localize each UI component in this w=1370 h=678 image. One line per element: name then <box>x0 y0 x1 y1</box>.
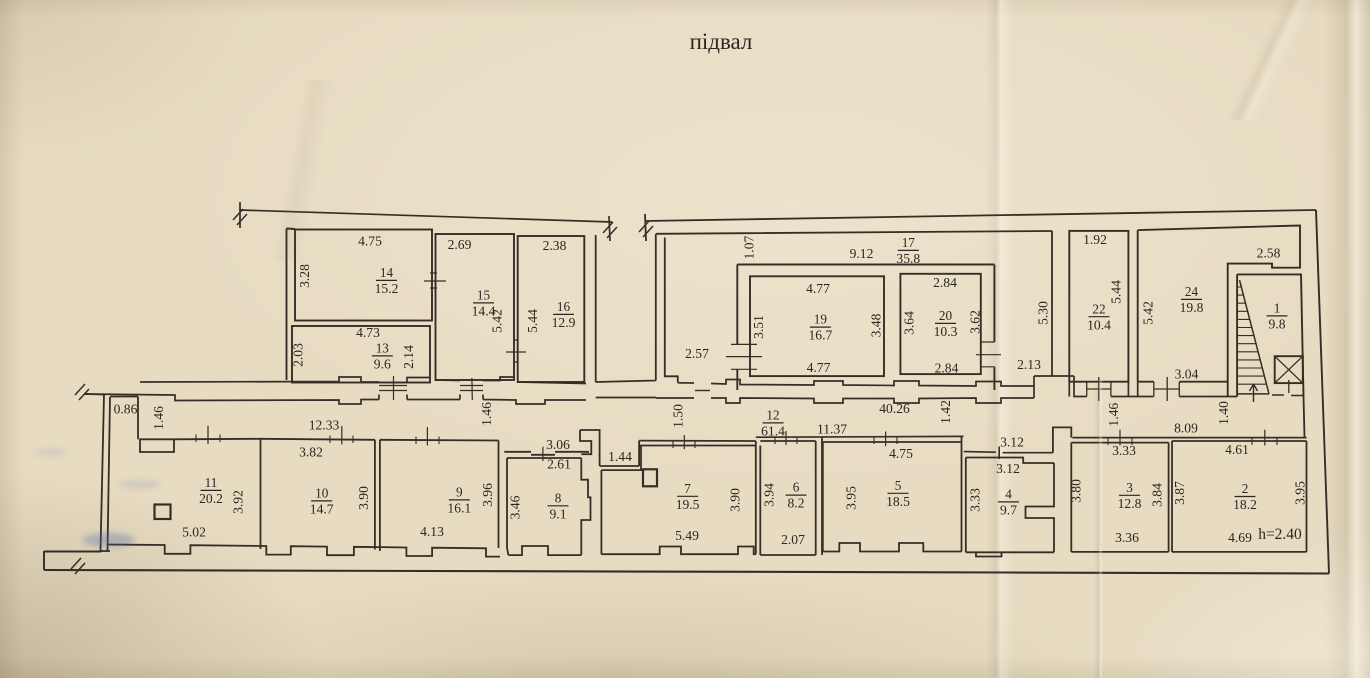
svg-text:3.51: 3.51 <box>751 315 766 339</box>
svg-text:3.33: 3.33 <box>1112 443 1136 458</box>
svg-text:3.94: 3.94 <box>762 483 777 507</box>
svg-text:20: 20 <box>939 308 953 323</box>
svg-text:5.30: 5.30 <box>1036 301 1051 325</box>
svg-text:4.13: 4.13 <box>420 524 444 539</box>
svg-text:8.09: 8.09 <box>1174 421 1198 436</box>
svg-text:3.64: 3.64 <box>902 311 917 335</box>
svg-text:2.14: 2.14 <box>401 345 416 369</box>
svg-text:8: 8 <box>555 490 562 505</box>
svg-text:4.73: 4.73 <box>356 325 380 340</box>
svg-text:5.42: 5.42 <box>490 309 505 333</box>
svg-text:2.57: 2.57 <box>685 346 709 361</box>
svg-text:5.44: 5.44 <box>525 309 540 333</box>
svg-text:3.12: 3.12 <box>1000 435 1024 450</box>
svg-text:9.12: 9.12 <box>850 246 874 261</box>
svg-text:12.8: 12.8 <box>1118 496 1142 511</box>
svg-text:4.75: 4.75 <box>889 446 913 461</box>
svg-text:6: 6 <box>793 480 800 495</box>
svg-text:11: 11 <box>205 475 218 490</box>
svg-text:8.2: 8.2 <box>788 496 805 511</box>
svg-text:16.1: 16.1 <box>447 501 471 516</box>
svg-text:19.8: 19.8 <box>1180 300 1204 315</box>
svg-text:20.2: 20.2 <box>199 491 223 506</box>
svg-text:3.06: 3.06 <box>546 437 570 452</box>
svg-text:2.03: 2.03 <box>291 343 306 367</box>
svg-text:12: 12 <box>766 408 779 423</box>
svg-text:9: 9 <box>456 485 463 500</box>
svg-text:1.46: 1.46 <box>151 406 166 430</box>
svg-text:15.2: 15.2 <box>375 281 399 296</box>
svg-text:9.1: 9.1 <box>550 506 567 521</box>
svg-text:16: 16 <box>557 299 571 314</box>
svg-text:3.80: 3.80 <box>1069 479 1084 503</box>
svg-text:3.33: 3.33 <box>968 488 983 512</box>
svg-text:61.4: 61.4 <box>761 424 785 439</box>
svg-text:2: 2 <box>1242 481 1249 496</box>
svg-text:10.4: 10.4 <box>1087 317 1111 332</box>
svg-text:12.9: 12.9 <box>552 315 576 330</box>
svg-text:3.48: 3.48 <box>869 313 884 337</box>
svg-text:3.62: 3.62 <box>968 310 983 334</box>
svg-text:2.58: 2.58 <box>1257 246 1281 261</box>
svg-text:2.07: 2.07 <box>781 532 805 547</box>
svg-text:12.33: 12.33 <box>309 418 340 433</box>
svg-text:9.8: 9.8 <box>1269 317 1286 332</box>
svg-text:5.02: 5.02 <box>182 525 206 540</box>
svg-text:1.46: 1.46 <box>479 402 494 426</box>
svg-text:3.46: 3.46 <box>508 495 523 519</box>
svg-text:11.37: 11.37 <box>817 422 847 437</box>
svg-text:1: 1 <box>1274 301 1281 316</box>
svg-text:5.42: 5.42 <box>1141 301 1156 325</box>
svg-text:18.5: 18.5 <box>886 494 910 509</box>
svg-text:7: 7 <box>684 481 691 496</box>
svg-text:1.92: 1.92 <box>1083 232 1107 247</box>
svg-text:3.90: 3.90 <box>728 488 743 512</box>
svg-text:2.61: 2.61 <box>547 457 571 472</box>
svg-text:4: 4 <box>1005 487 1012 502</box>
svg-text:3.95: 3.95 <box>1293 481 1308 505</box>
svg-text:2.38: 2.38 <box>543 238 567 253</box>
svg-text:підвал: підвал <box>690 29 753 54</box>
svg-text:16.7: 16.7 <box>809 328 833 343</box>
svg-text:9.7: 9.7 <box>1000 503 1017 518</box>
svg-text:3.95: 3.95 <box>844 486 859 510</box>
svg-text:10.3: 10.3 <box>934 324 958 339</box>
svg-text:14.7: 14.7 <box>310 502 334 517</box>
svg-text:3.36: 3.36 <box>1115 530 1139 545</box>
svg-text:3.04: 3.04 <box>1175 367 1199 382</box>
svg-text:17: 17 <box>902 235 916 250</box>
svg-text:1.42: 1.42 <box>938 400 953 424</box>
svg-text:1.40: 1.40 <box>1216 401 1231 425</box>
svg-text:3.87: 3.87 <box>1172 481 1187 505</box>
svg-text:24: 24 <box>1185 284 1199 299</box>
svg-text:14: 14 <box>380 265 394 280</box>
svg-text:1.07: 1.07 <box>742 236 757 260</box>
svg-text:4.69: 4.69 <box>1228 530 1252 545</box>
svg-text:3.90: 3.90 <box>356 486 371 510</box>
svg-text:3.12: 3.12 <box>996 461 1020 476</box>
svg-text:2.13: 2.13 <box>1017 357 1041 372</box>
svg-text:15: 15 <box>477 288 491 303</box>
svg-text:5: 5 <box>895 478 902 493</box>
svg-text:4.77: 4.77 <box>806 281 830 296</box>
svg-text:5.49: 5.49 <box>675 528 699 543</box>
svg-text:19.5: 19.5 <box>676 497 700 512</box>
svg-text:4.61: 4.61 <box>1225 442 1249 457</box>
svg-text:3.92: 3.92 <box>231 490 246 514</box>
svg-text:13: 13 <box>376 341 390 356</box>
svg-text:5.44: 5.44 <box>1109 280 1124 304</box>
svg-text:1.44: 1.44 <box>608 449 632 464</box>
svg-text:10: 10 <box>315 486 329 501</box>
svg-text:2.84: 2.84 <box>935 361 959 376</box>
svg-text:18.2: 18.2 <box>1233 497 1257 512</box>
svg-text:19: 19 <box>814 312 828 327</box>
svg-text:0.86: 0.86 <box>114 402 138 417</box>
svg-text:h=2.40: h=2.40 <box>1258 526 1302 543</box>
svg-text:3.28: 3.28 <box>297 264 312 288</box>
svg-text:3.82: 3.82 <box>299 445 323 460</box>
svg-text:9.6: 9.6 <box>374 357 391 372</box>
svg-text:1.46: 1.46 <box>1106 403 1121 427</box>
svg-text:40.26: 40.26 <box>879 401 910 416</box>
svg-text:1.50: 1.50 <box>671 404 686 428</box>
svg-text:2.84: 2.84 <box>933 275 957 290</box>
svg-text:3: 3 <box>1126 480 1133 495</box>
svg-text:3.84: 3.84 <box>1150 483 1165 507</box>
svg-text:4.77: 4.77 <box>807 360 831 375</box>
svg-text:22: 22 <box>1092 301 1105 316</box>
svg-text:3.96: 3.96 <box>480 483 495 507</box>
